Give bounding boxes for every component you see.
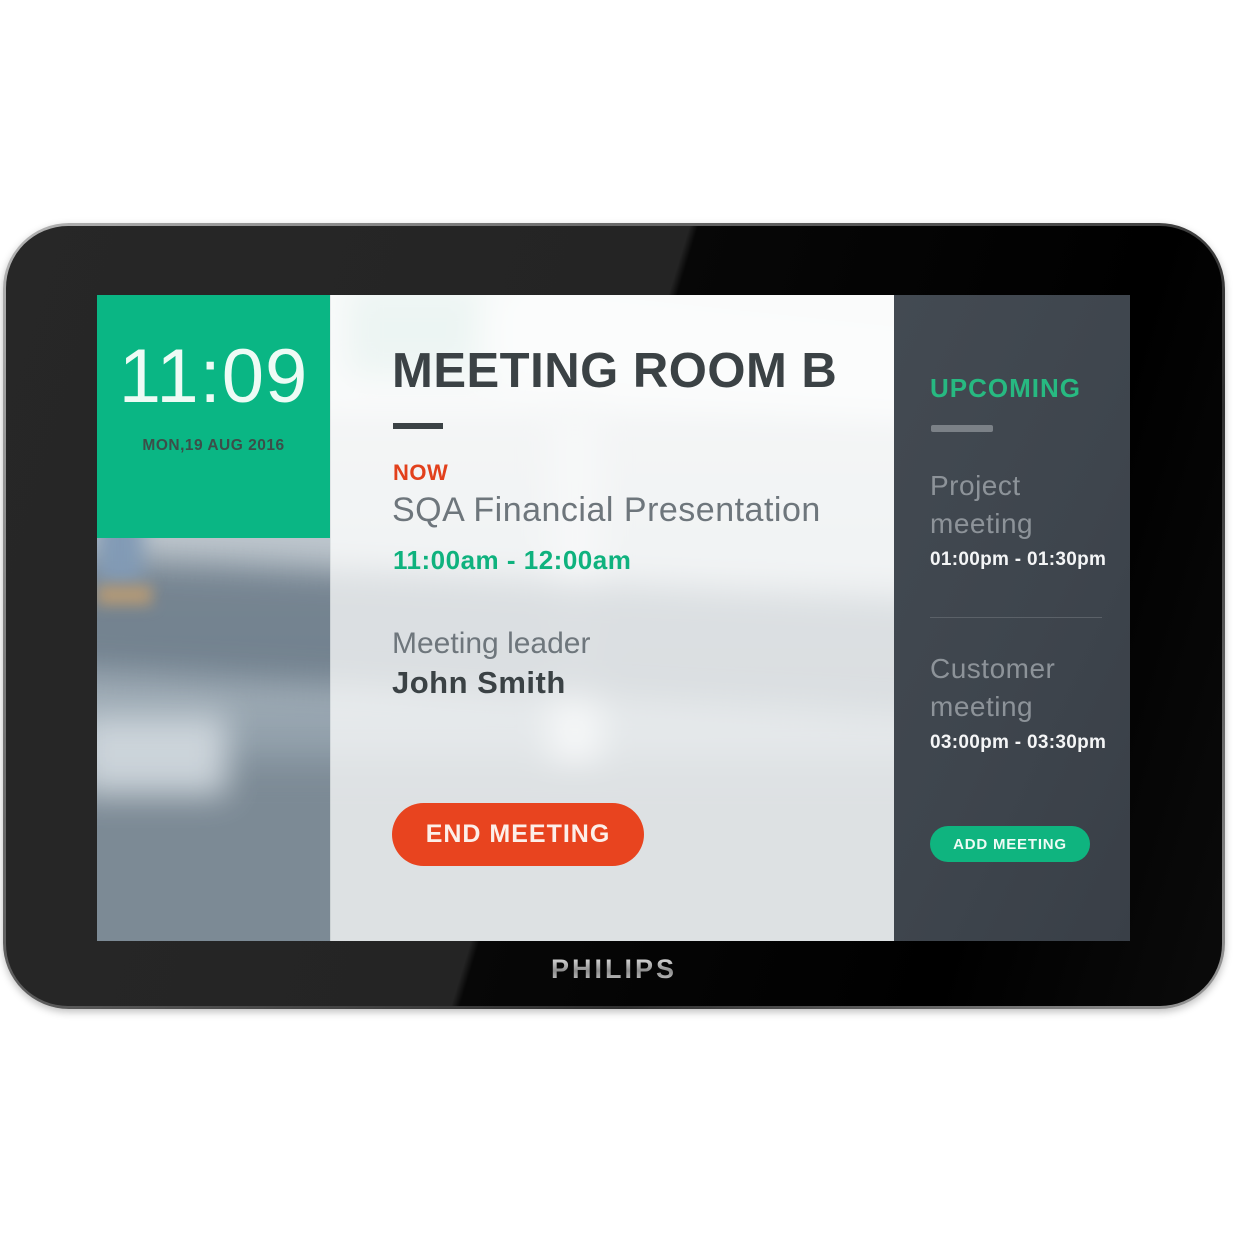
current-meeting-time: 11:00am - 12:00am xyxy=(393,545,631,576)
room-title: MEETING ROOM B xyxy=(392,343,837,399)
clock-time: 11:09 xyxy=(97,339,330,415)
upcoming-title: UPCOMING xyxy=(930,373,1081,404)
event-name: Project meeting xyxy=(930,467,1100,543)
screen: 11:09 MON,19 AUG 2016 MEETING ROOM B NOW… xyxy=(97,295,1130,941)
add-meeting-button[interactable]: ADD MEETING xyxy=(930,826,1090,862)
event-time: 03:00pm - 03:30pm xyxy=(930,732,1100,754)
now-status-label: NOW xyxy=(393,460,448,486)
upcoming-sidebar: UPCOMING Project meeting 01:00pm - 01:30… xyxy=(894,295,1130,941)
meeting-leader-name: John Smith xyxy=(392,665,566,701)
upcoming-event-2[interactable]: Customer meeting 03:00pm - 03:30pm xyxy=(930,650,1100,754)
philips-logo: PHILIPS xyxy=(6,954,1222,985)
event-name: Customer meeting xyxy=(930,650,1100,726)
end-meeting-button[interactable]: END MEETING xyxy=(392,803,644,866)
event-time: 01:00pm - 01:30pm xyxy=(930,549,1100,571)
event-divider xyxy=(930,617,1102,618)
tablet-device: 11:09 MON,19 AUG 2016 MEETING ROOM B NOW… xyxy=(3,223,1225,1009)
title-underline xyxy=(393,423,443,429)
upcoming-event-1[interactable]: Project meeting 01:00pm - 01:30pm xyxy=(930,467,1100,571)
clock-date: MON,19 AUG 2016 xyxy=(97,437,330,455)
meeting-leader-label: Meeting leader xyxy=(392,627,590,661)
current-meeting-title: SQA Financial Presentation xyxy=(392,491,821,530)
meeting-info-panel: MEETING ROOM B NOW SQA Financial Present… xyxy=(330,295,894,941)
tablet-bezel: 11:09 MON,19 AUG 2016 MEETING ROOM B NOW… xyxy=(6,226,1222,1006)
upcoming-underline xyxy=(931,425,993,432)
page: 11:09 MON,19 AUG 2016 MEETING ROOM B NOW… xyxy=(0,0,1233,1233)
clock-panel: 11:09 MON,19 AUG 2016 xyxy=(97,295,330,538)
